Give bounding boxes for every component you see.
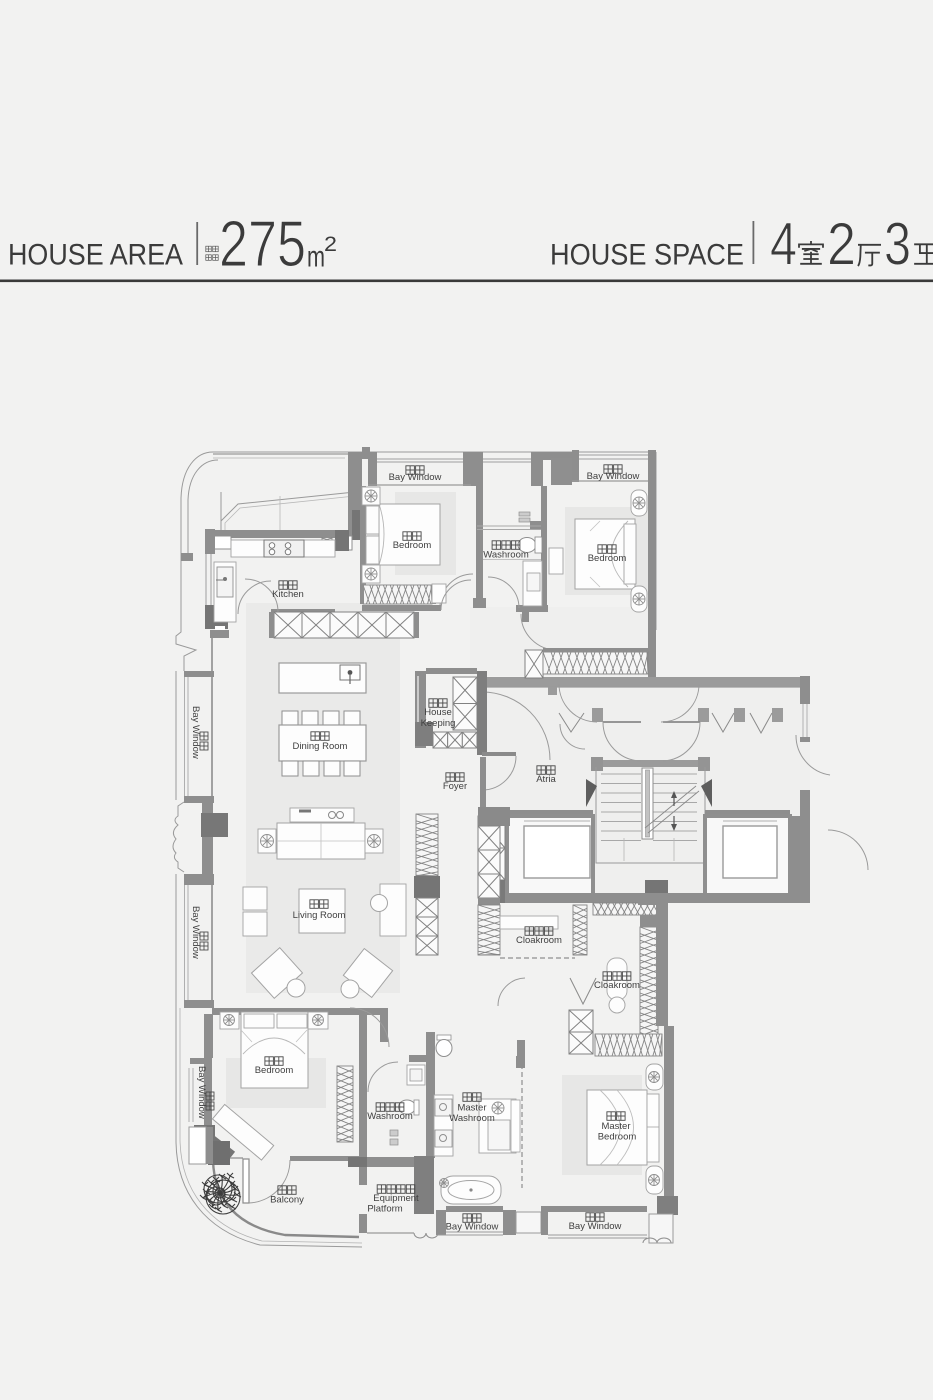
svg-text:Bay Window: Bay Window <box>190 906 201 959</box>
svg-text:Washroom: Washroom <box>367 1111 413 1122</box>
svg-text:Bay Window: Bay Window <box>446 1222 499 1233</box>
svg-text:Atria: Atria <box>536 774 556 785</box>
svg-text:Keeping: Keeping <box>421 718 456 729</box>
svg-text:House: House <box>424 707 451 718</box>
svg-text:Bedroom: Bedroom <box>255 1065 294 1076</box>
svg-text:HOUSE SPACE: HOUSE SPACE <box>550 239 744 272</box>
svg-text:Dining Room: Dining Room <box>293 741 348 752</box>
svg-text:Balcony: Balcony <box>270 1195 304 1206</box>
svg-text:Bay Window: Bay Window <box>196 1066 207 1119</box>
svg-text:Bay Window: Bay Window <box>190 706 201 759</box>
svg-text:Master: Master <box>601 1121 630 1132</box>
svg-text:Equipment: Equipment <box>373 1193 419 1204</box>
svg-text:HOUSE AREA: HOUSE AREA <box>8 239 183 272</box>
svg-text:Cloakroom: Cloakroom <box>516 935 562 946</box>
svg-text:Bedroom: Bedroom <box>393 540 432 551</box>
svg-text:Bay Window: Bay Window <box>569 1221 622 1232</box>
svg-text:Foyer: Foyer <box>443 781 467 792</box>
svg-text:Bay Window: Bay Window <box>389 472 442 483</box>
svg-text:Bedroom: Bedroom <box>588 553 627 564</box>
svg-text:2: 2 <box>324 233 337 256</box>
svg-text:Washroom: Washroom <box>483 550 529 561</box>
svg-text:Cloakroom: Cloakroom <box>594 980 640 991</box>
svg-text:3: 3 <box>884 211 911 278</box>
svg-text:Bay Window: Bay Window <box>587 471 640 482</box>
svg-text:m: m <box>307 241 325 274</box>
svg-text:Living Room: Living Room <box>293 910 346 921</box>
svg-text:Washroom: Washroom <box>449 1113 495 1124</box>
svg-text:4: 4 <box>770 211 797 278</box>
svg-text:Platform: Platform <box>367 1204 402 1215</box>
svg-text:275: 275 <box>219 208 306 280</box>
svg-text:Kitchen: Kitchen <box>272 589 304 600</box>
svg-text:2: 2 <box>827 211 856 278</box>
svg-text:Master: Master <box>457 1103 486 1114</box>
svg-text:Bedroom: Bedroom <box>598 1132 637 1143</box>
